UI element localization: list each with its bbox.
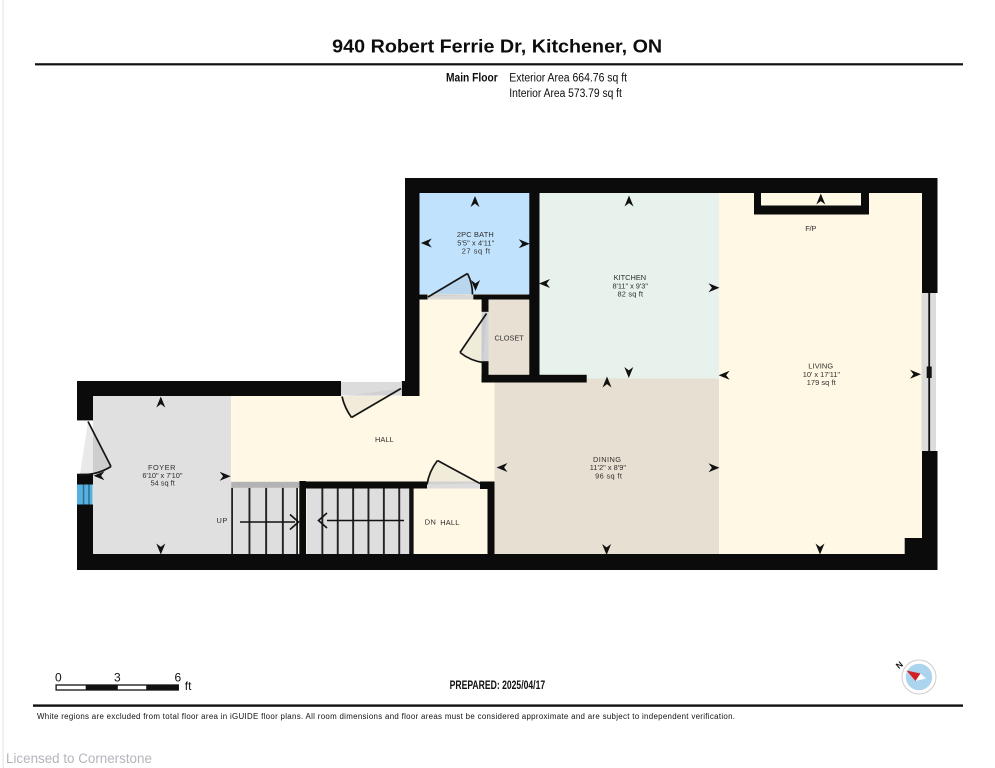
svg-text:54 sq ft: 54 sq ft bbox=[150, 478, 174, 487]
svg-text:HALL: HALL bbox=[440, 518, 459, 527]
svg-text:F/P: F/P bbox=[805, 224, 816, 233]
svg-text:ft: ft bbox=[185, 679, 192, 693]
svg-text:HALL: HALL bbox=[375, 435, 394, 444]
svg-text:White regions are excluded fro: White regions are excluded from total fl… bbox=[37, 712, 735, 721]
svg-text:0: 0 bbox=[55, 670, 62, 684]
svg-text:KITCHEN: KITCHEN bbox=[614, 273, 647, 282]
svg-text:6: 6 bbox=[175, 670, 182, 684]
svg-text:Main Floor: Main Floor bbox=[446, 73, 498, 85]
svg-text:Exterior Area 664.76 sq ft: Exterior Area 664.76 sq ft bbox=[509, 73, 627, 85]
svg-text:82 sq ft: 82 sq ft bbox=[618, 289, 644, 298]
svg-text:3: 3 bbox=[114, 670, 121, 684]
svg-text:PREPARED: 2025/04/17: PREPARED: 2025/04/17 bbox=[450, 680, 546, 692]
svg-text:11'2" x 8'9": 11'2" x 8'9" bbox=[590, 463, 627, 472]
svg-text:UP: UP bbox=[216, 516, 227, 525]
svg-text:96 sq ft: 96 sq ft bbox=[595, 472, 622, 481]
svg-text:CLOSET: CLOSET bbox=[495, 333, 525, 342]
svg-text:179 sq ft: 179 sq ft bbox=[807, 378, 836, 387]
svg-text:27 sq ft: 27 sq ft bbox=[462, 247, 490, 256]
svg-text:940 Robert Ferrie Dr, Kitchene: 940 Robert Ferrie Dr, Kitchener, ON bbox=[332, 36, 662, 57]
svg-text:DN: DN bbox=[425, 518, 436, 527]
svg-text:N: N bbox=[894, 659, 905, 671]
svg-text:Interior Area 573.79 sq ft: Interior Area 573.79 sq ft bbox=[509, 88, 622, 100]
svg-text:Licensed to Cornerstone: Licensed to Cornerstone bbox=[6, 751, 152, 766]
